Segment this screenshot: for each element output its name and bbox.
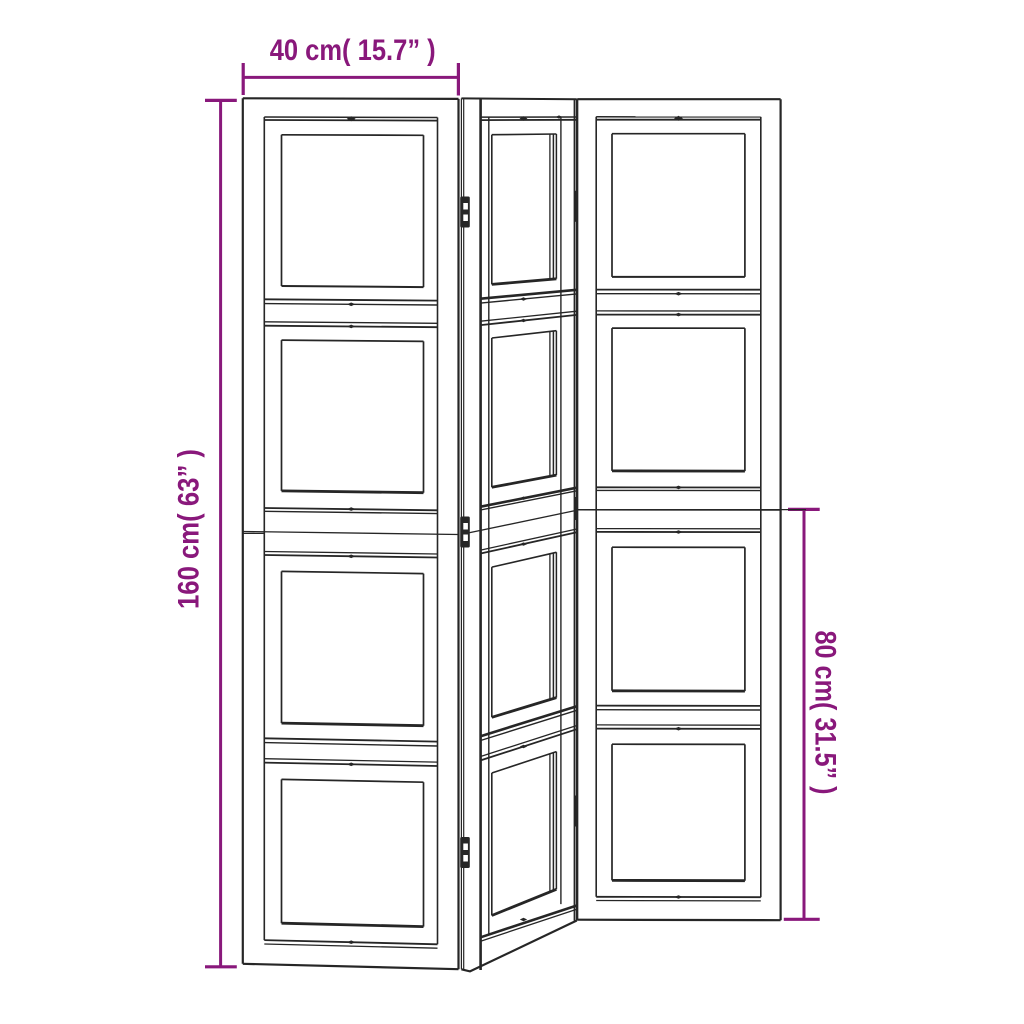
svg-text:40 cm( 15.7” ): 40 cm( 15.7” ) — [270, 34, 436, 67]
svg-text:160 cm( 63” ): 160 cm( 63” ) — [173, 449, 206, 609]
svg-text:80 cm( 31.5” ): 80 cm( 31.5” ) — [809, 631, 842, 795]
